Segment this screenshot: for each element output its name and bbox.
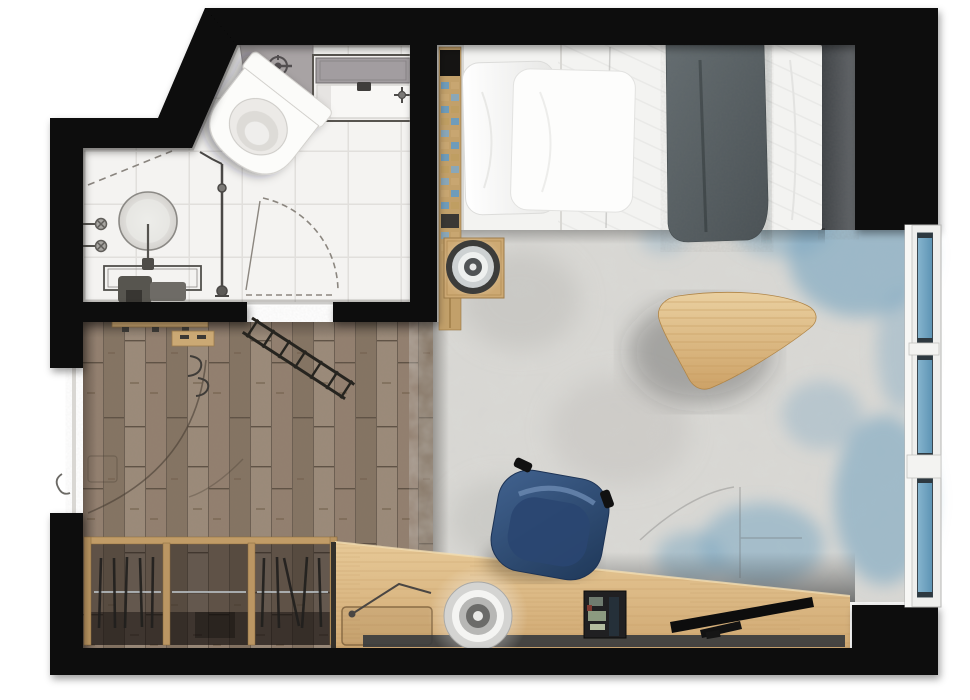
window-mullion — [907, 455, 941, 478]
bed-right-floor-grain — [820, 45, 857, 230]
door-leaf-line — [72, 368, 76, 513]
door-handle-icon — [57, 474, 70, 494]
wardrobe-divider — [163, 543, 170, 645]
pillow — [510, 68, 636, 212]
wall-top — [205, 8, 938, 45]
wall-top-right-block — [855, 8, 938, 230]
wall-bottom — [50, 648, 938, 675]
wardrobe — [84, 537, 337, 645]
window-group — [905, 225, 941, 607]
wall-left-upper — [50, 118, 83, 368]
wardrobe-frame-top — [84, 537, 337, 544]
bathroom-group — [83, 45, 413, 303]
wall-bottom-right-block — [852, 605, 938, 650]
wall-bathroom-bottom-left — [83, 302, 247, 322]
shoe-block — [172, 331, 214, 346]
wardrobe-divider — [248, 543, 255, 645]
drain — [357, 82, 371, 91]
window-mullion — [909, 343, 939, 355]
bedside-table — [441, 235, 505, 299]
floorplan-image — [0, 0, 970, 700]
wall-bathroom-divider — [410, 45, 437, 322]
window-glass-panes — [918, 233, 933, 597]
minibar-tray — [584, 591, 626, 638]
floorplan-canvas — [0, 0, 970, 700]
round-tray — [446, 240, 500, 294]
entry-door-opening — [57, 368, 76, 513]
single-bed — [455, 45, 825, 244]
blanket-texture — [666, 45, 768, 242]
desk-round-tray — [444, 582, 512, 650]
